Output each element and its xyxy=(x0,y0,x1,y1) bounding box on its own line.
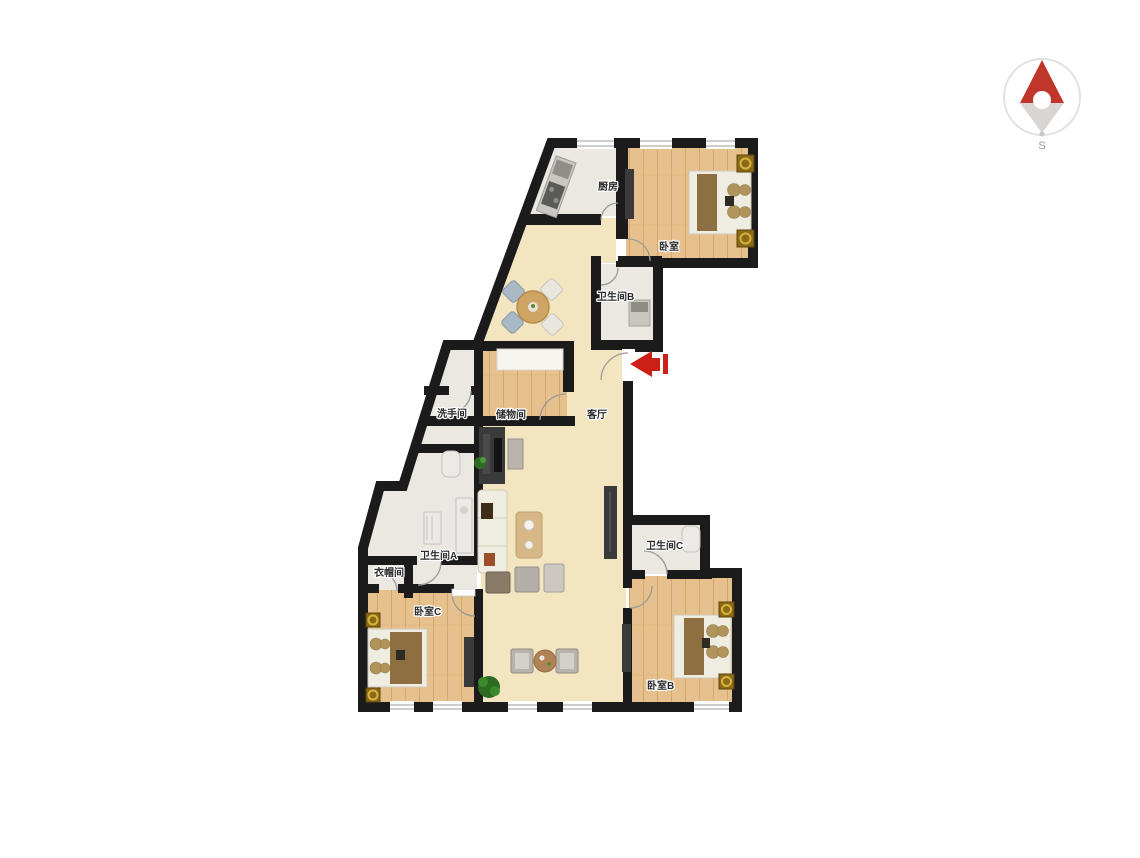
bed xyxy=(368,629,427,687)
bed xyxy=(689,171,751,234)
window xyxy=(508,701,537,713)
armchair xyxy=(486,572,510,593)
speaker xyxy=(508,439,523,469)
window xyxy=(694,701,729,713)
bathroom-b-sink xyxy=(629,300,650,326)
nightstand xyxy=(737,155,754,172)
window xyxy=(577,137,614,149)
room-label-cloakroom: 衣帽间 xyxy=(374,566,404,579)
plant-large xyxy=(478,676,500,698)
nightstand xyxy=(366,688,380,702)
nightstand xyxy=(737,230,754,247)
wardrobe xyxy=(622,624,631,672)
wardrobe xyxy=(625,169,634,219)
storage-cabinet xyxy=(497,349,563,370)
armchair xyxy=(515,567,539,592)
room-label-bathroom-b: 卫生间B xyxy=(597,290,634,303)
nightstand xyxy=(366,613,380,627)
bathroom-c-toilet xyxy=(682,526,700,552)
wardrobe xyxy=(464,637,474,687)
compass: S xyxy=(1004,59,1080,152)
room-label-kitchen: 厨房 xyxy=(598,180,618,193)
window xyxy=(390,701,414,713)
nightstand xyxy=(719,674,734,689)
room-label-washroom: 洗手间 xyxy=(437,407,467,420)
room-label-bathroom-a: 卫生间A xyxy=(420,549,457,562)
room-label-bedroom-b: 卧室B xyxy=(647,679,674,692)
window xyxy=(640,137,672,149)
room-label-storage-room: 储物间 xyxy=(495,408,526,421)
armchair xyxy=(544,564,564,592)
room-label-bedroom-c: 卧室C xyxy=(414,605,441,618)
sofa xyxy=(478,490,507,573)
window xyxy=(563,701,592,713)
compass-south-label: S xyxy=(1038,140,1045,152)
toilet xyxy=(442,451,460,477)
tea-table-set xyxy=(511,649,578,673)
nightstand xyxy=(719,602,734,617)
tea-table xyxy=(534,650,556,672)
window xyxy=(706,137,735,149)
floor-plan-canvas: 厨房 卧室 卫生间B 客厅 储物间 洗手间 卫生间A 衣帽间 卧室C 卫生间C … xyxy=(0,0,1140,858)
room-label-bathroom-c: 卫生间C xyxy=(646,539,683,552)
room-label-living-room: 客厅 xyxy=(586,408,607,421)
room-label-master-bedroom: 卧室 xyxy=(659,240,679,253)
coffee-table xyxy=(516,512,542,558)
floorplan-svg: 厨房 卧室 卫生间B 客厅 储物间 洗手间 卫生间A 衣帽间 卧室C 卫生间C … xyxy=(0,0,1140,858)
entrance-arrow-icon xyxy=(630,351,668,377)
bedroom-c-door-leaf xyxy=(452,589,475,596)
bed xyxy=(674,615,731,678)
window xyxy=(433,701,462,713)
